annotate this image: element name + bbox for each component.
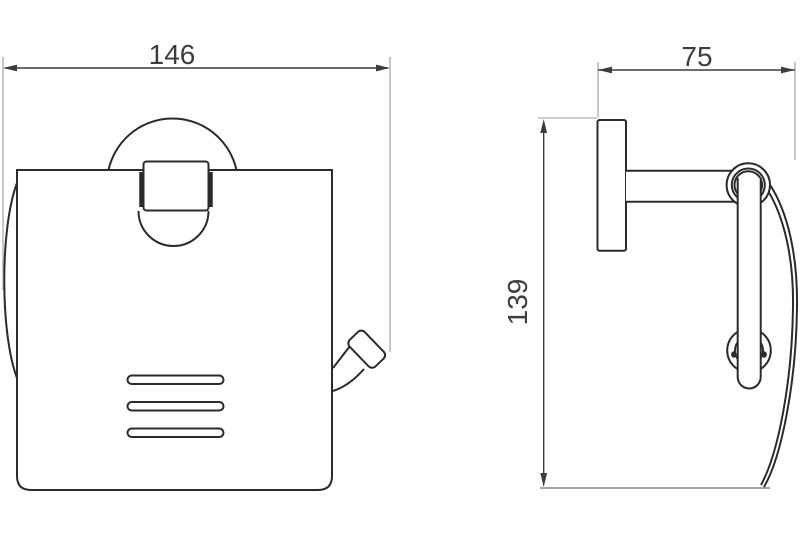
arrowhead-top — [540, 119, 547, 133]
spindle-arm-upper-line — [333, 346, 350, 368]
side-view — [598, 120, 798, 487]
toilet-paper-holder-drawing: 146 — [0, 0, 800, 533]
knob-axis-dot-right — [762, 351, 767, 357]
spindle-arm-lower-curve — [333, 369, 364, 391]
spindle-end-peg — [346, 329, 387, 370]
dimension-side-depth: 75 — [598, 41, 795, 160]
vent-slot — [128, 402, 224, 411]
front-view — [4, 119, 387, 491]
arrowhead-left — [598, 67, 612, 74]
vent-slot — [128, 376, 224, 385]
arrowhead-bottom — [540, 473, 547, 487]
wall-plate — [598, 120, 627, 251]
arrowhead-left — [3, 65, 17, 72]
mounting-arm — [626, 171, 742, 202]
dimension-label-front-width: 146 — [149, 39, 196, 70]
vent-slot — [128, 429, 224, 438]
dimension-label-side-height: 139 — [502, 279, 533, 326]
knob-axis-dot-left — [731, 351, 736, 357]
arrowhead-right — [376, 65, 390, 72]
technical-drawing-page: 146 — [0, 0, 800, 533]
paper-roll-left-bulge — [4, 183, 17, 378]
cover-body — [17, 170, 332, 490]
arrowhead-right — [781, 67, 795, 74]
latch-block — [144, 162, 209, 211]
dimension-label-side-depth: 75 — [681, 41, 712, 72]
hanger-rod — [738, 178, 761, 389]
